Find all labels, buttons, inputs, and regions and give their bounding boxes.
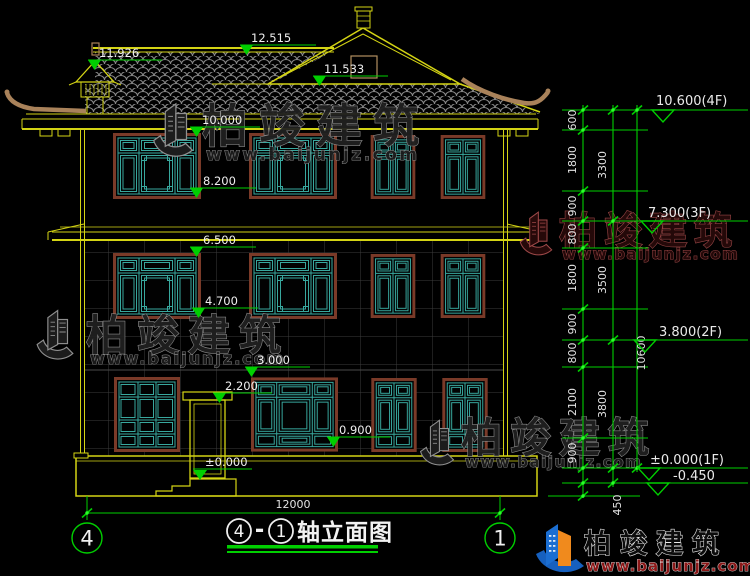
brand-logo-tower-2 xyxy=(558,530,571,566)
dim-label: 800 xyxy=(566,343,579,364)
ridge-finial xyxy=(355,7,372,28)
window xyxy=(442,255,484,316)
dim-label: 800 xyxy=(566,224,579,245)
elevation-label: 4.700 xyxy=(205,294,238,308)
elevation-label: 12.515 xyxy=(251,31,291,45)
watermark-url: www.baijunjz.com xyxy=(206,145,420,165)
elevation-label: -0.450 xyxy=(673,469,715,484)
elevation-label: 3.800(2F) xyxy=(659,325,722,340)
title-underline xyxy=(227,545,378,549)
dim-label: 3500 xyxy=(596,266,609,294)
dim-label: 3800 xyxy=(596,390,609,418)
brand-name: 柏竣建筑 xyxy=(584,528,728,560)
title-axis-end: 1 xyxy=(276,522,287,542)
window xyxy=(373,379,415,450)
window xyxy=(116,379,179,451)
window xyxy=(372,255,414,316)
axis-number: 1 xyxy=(493,527,506,551)
dim-label: 900 xyxy=(566,443,579,464)
title-separator: - xyxy=(255,517,266,543)
elevation-label: 10.000 xyxy=(202,113,242,127)
title-axis-start: 4 xyxy=(234,522,245,542)
elevation-label: 3.000 xyxy=(257,353,290,367)
dim-label: 900 xyxy=(566,314,579,335)
window xyxy=(442,136,484,197)
elevation-label: 8.200 xyxy=(203,174,236,188)
width-label: 12000 xyxy=(276,498,311,511)
elevation-drawing: 柏竣建筑 www.baijunjz.com 柏竣建筑 www.baijunjz.… xyxy=(0,0,750,576)
elevation-label: 7.300(3F) xyxy=(648,206,711,221)
axis-number: 4 xyxy=(80,527,93,551)
dim-label: 1800 xyxy=(566,264,579,292)
dim-label: 1800 xyxy=(566,146,579,174)
elevation-label: 6.500 xyxy=(203,233,236,247)
dim-label: 600 xyxy=(566,110,579,131)
dim-label: 900 xyxy=(566,196,579,217)
title-text: 轴立面图 xyxy=(297,519,393,546)
brand-url: www.baijunjz.com xyxy=(586,557,750,575)
dim-label: 2100 xyxy=(566,388,579,416)
elevation-label: ±0.000(1F) xyxy=(650,453,724,468)
elevation-label: 0.900 xyxy=(339,423,372,437)
total-height-label: 10600 xyxy=(635,336,648,371)
elevation-label: 11.533 xyxy=(324,62,364,76)
elevation-label: ±0.000 xyxy=(205,455,248,469)
elevation-label: 2.200 xyxy=(225,379,258,393)
window xyxy=(115,255,200,318)
dim-label: 450 xyxy=(611,495,624,516)
dim-label: 3300 xyxy=(596,151,609,179)
window xyxy=(252,379,336,450)
window xyxy=(251,255,336,318)
title-underline-2 xyxy=(227,551,378,553)
elevation-label: 11.926 xyxy=(99,46,139,60)
elevation-label: 10.600(4F) xyxy=(656,94,727,109)
